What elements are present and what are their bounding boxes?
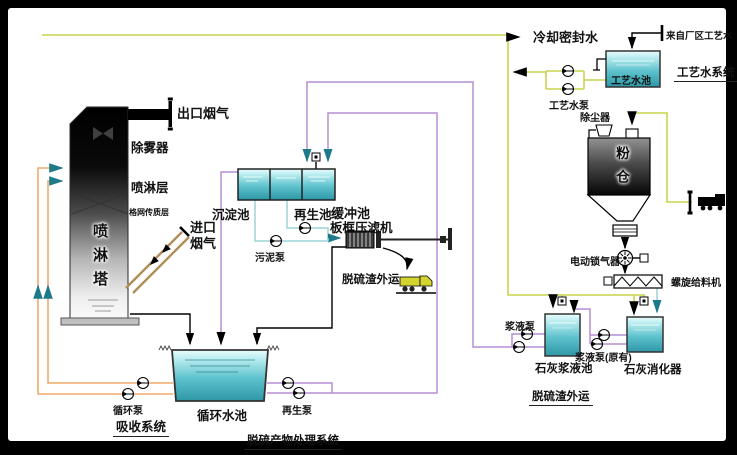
water-system-title: 工艺水系统 [674,64,737,82]
circulating-pool [159,346,279,401]
rotary-airlock-label: 电动锁气器 [570,253,620,268]
regeneration-pump-label: 再生泵 [282,402,312,417]
process-water-pump-icon [563,84,574,95]
silo-inlet [626,129,638,138]
process-water-pool-label: 工艺水池 [611,72,651,87]
lime-digester-tank [627,317,663,352]
regeneration-pump-icon [283,378,294,389]
digester-valve-icon [640,297,648,305]
slurry-pump-original-icon [592,339,603,350]
absorption-system-title: 吸收系统 [113,416,169,437]
from-plant-water-label: 来自厂区工艺水 [666,28,733,42]
regeneration-tank-label: 再生池 [294,204,332,223]
slurry-pump-label: 浆液泵 [505,318,535,333]
settling-tanks [238,169,335,200]
slag-transport-label: 脱硫渣外运 [342,271,400,287]
tower-base [61,318,139,325]
cooling-seal-water-label: 冷却密封水 [533,27,598,46]
slurry-pump-icon [514,342,525,353]
sludge-pump-icon [271,236,282,247]
demister-label: 除雾器 [131,137,169,156]
circulating-pump-icon [123,389,134,400]
slag-transport-title: 脱硫渣外运 [529,388,593,406]
spray-tower-title: 喷淋塔 [89,223,110,295]
process-water-pump-icon [563,66,574,77]
sludge-pump-label: 污泥泵 [255,249,285,264]
screw-feeder-label: 螺旋给料机 [671,274,721,289]
circulating-pump-icon [138,378,149,389]
outlet-flange [169,101,173,127]
dust-collector-label: 除尘器 [580,109,610,124]
product-system-title: 脱硫产物处理系统 [244,432,342,450]
regeneration-pump-icon [294,388,305,399]
outlet-duct [128,109,170,120]
circulating-pool-label: 循环水池 [197,405,247,424]
grid-layer-label: 格网传质层 [129,207,169,218]
spray-layer-label: 喷淋层 [131,177,169,196]
circulating-pump-label: 循环泵 [113,402,143,417]
slurry-tank-valve-icon [558,297,566,305]
fgd-process-diagram: 出口烟气 除雾器 喷淋层 格网传质层 进口 烟气 喷淋塔 沉淀池 再生池 缓冲池… [0,0,737,455]
filter-press-label: 板框压滤机 [330,217,393,236]
powder-silo-title: 粉仓 [611,146,631,193]
buffer-tank-valve-icon [312,153,320,161]
outlet-gas-label: 出口烟气 [177,103,229,122]
sedimentation-tank-label: 沉淀池 [212,204,250,223]
sludge-pump-icon [300,223,311,234]
slide-gate-icon [613,225,637,236]
lime-digester-label: 石灰消化器 [624,361,682,377]
inlet-gas-label-2: 烟气 [190,233,216,252]
